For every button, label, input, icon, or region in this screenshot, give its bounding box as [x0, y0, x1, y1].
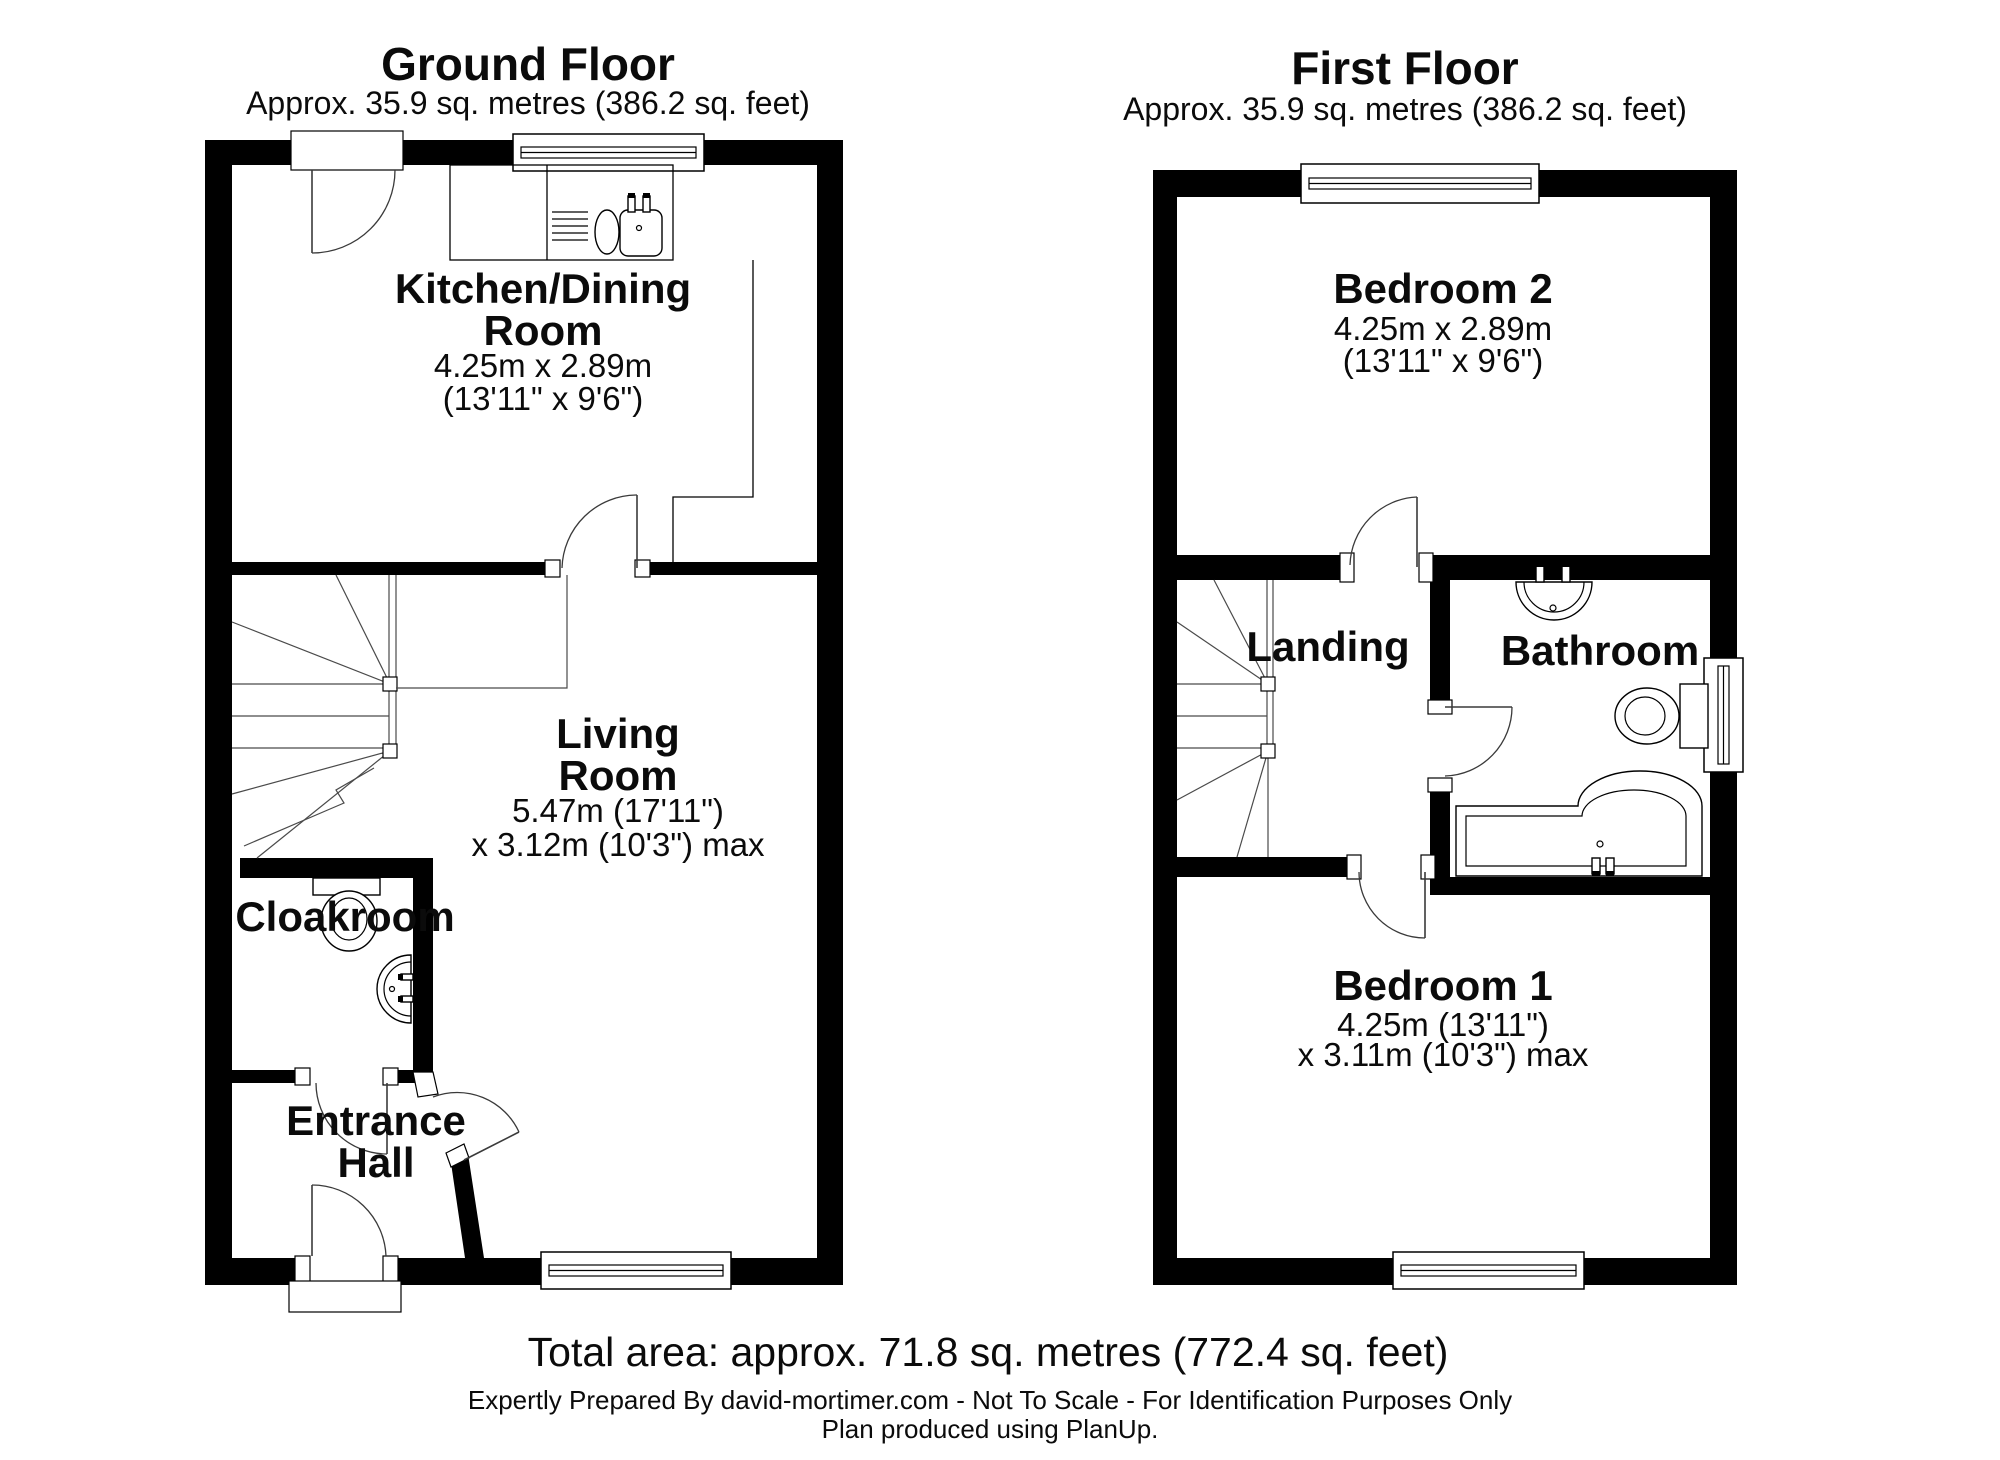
- front-door-recess: [289, 1281, 401, 1312]
- bedroom1-label: Bedroom 1: [1333, 962, 1552, 1009]
- back-door-arc: [312, 170, 395, 253]
- bedroom1-door-arc: [1359, 872, 1425, 938]
- bedroom2-door-arc: [1350, 497, 1417, 565]
- landing-label: Landing: [1246, 623, 1409, 670]
- living-room-dims: 5.47m (17'11"): [512, 792, 724, 829]
- stair-break-line: [244, 768, 374, 846]
- bedroom2-window: [1301, 164, 1539, 203]
- first-floor-subtitle: Approx. 35.9 sq. metres (386.2 sq. feet): [1123, 91, 1687, 127]
- bathroom-label: Bathroom: [1501, 627, 1699, 674]
- bathroom-bath: [1456, 771, 1702, 876]
- credit-text: Plan produced using PlanUp.: [822, 1414, 1159, 1444]
- svg-text:x 3.11m (10'3") max: x 3.11m (10'3") max: [1298, 1036, 1589, 1073]
- cloakroom-label: Cloakroom: [235, 893, 454, 940]
- kitchen-door-arc: [562, 495, 637, 568]
- front-door-arc: [312, 1185, 386, 1256]
- ground-floor-plan: Ground Floor Approx. 35.9 sq. metres (38…: [205, 38, 843, 1312]
- footer: Total area: approx. 71.8 sq. metres (772…: [468, 1329, 1512, 1444]
- svg-text:x 3.12m (10'3") max: x 3.12m (10'3") max: [471, 826, 765, 863]
- svg-text:Hall: Hall: [337, 1139, 414, 1186]
- svg-text:(13'11" x 9'6"): (13'11" x 9'6"): [443, 380, 644, 417]
- kitchen-label: Kitchen/Dining: [395, 265, 691, 312]
- first-floor-plan: First Floor Approx. 35.9 sq. metres (386…: [1123, 42, 1743, 1289]
- ground-labels: Ground Floor Approx. 35.9 sq. metres (38…: [235, 38, 810, 1186]
- bathroom-door-arc: [1445, 707, 1512, 776]
- sink-half-bowl: [595, 210, 619, 254]
- tap-icon: [628, 196, 635, 212]
- total-area-text: Total area: approx. 71.8 sq. metres (772…: [528, 1329, 1449, 1375]
- floorplan-page: Ground Floor Approx. 35.9 sq. metres (38…: [0, 0, 2000, 1455]
- svg-text:(13'11" x 9'6"): (13'11" x 9'6"): [1343, 342, 1544, 379]
- living-room-label: Living: [556, 710, 680, 757]
- bedroom1-window: [1393, 1252, 1584, 1289]
- bathroom-wc: [1615, 684, 1708, 748]
- back-door-recess: [291, 131, 403, 170]
- bedroom2-label: Bedroom 2: [1333, 265, 1552, 312]
- kitchen-dims: 4.25m x 2.89m: [434, 347, 652, 384]
- entrance-hall-label: Entrance: [286, 1097, 466, 1144]
- living-room-window: [541, 1252, 731, 1289]
- ground-floor-subtitle: Approx. 35.9 sq. metres (386.2 sq. feet): [246, 85, 810, 121]
- first-floor-title: First Floor: [1291, 42, 1519, 94]
- bathroom-window: [1704, 658, 1743, 772]
- ground-floor-title: Ground Floor: [381, 38, 675, 90]
- tap-icon: [643, 196, 650, 212]
- stair-zone-boundary: [396, 575, 567, 688]
- cloakroom-basin: [377, 955, 413, 1023]
- disclaimer-text: Expertly Prepared By david-mortimer.com …: [468, 1385, 1512, 1415]
- sink-bowl: [620, 210, 662, 256]
- floorplan-drawing: Ground Floor Approx. 35.9 sq. metres (38…: [0, 0, 2000, 1455]
- first-stairs: [1177, 580, 1275, 857]
